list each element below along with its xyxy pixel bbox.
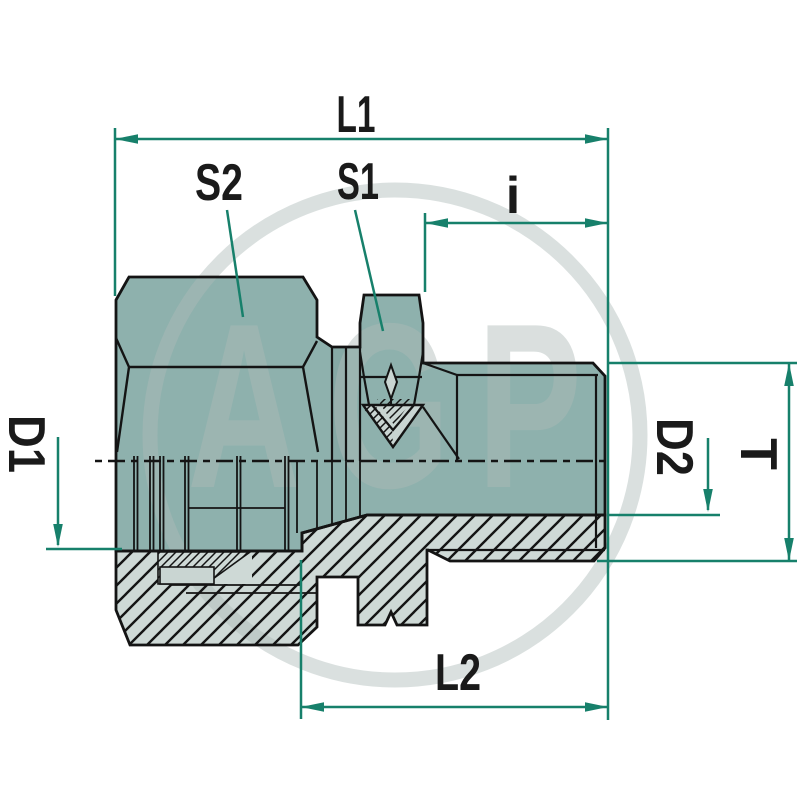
dim-label-d2: D2 bbox=[645, 418, 703, 476]
dim-label-t: T bbox=[729, 438, 787, 470]
dim-label-l2: L2 bbox=[435, 644, 481, 702]
dim-label-i: i bbox=[506, 167, 520, 225]
dim-label-s2: S2 bbox=[195, 154, 243, 212]
dim-label-s1: S1 bbox=[337, 153, 379, 211]
tube-end-section bbox=[160, 567, 214, 584]
dim-label-l1: L1 bbox=[337, 86, 376, 144]
fitting-diagram: AGP bbox=[0, 0, 800, 800]
technical-drawing-canvas: AGP bbox=[0, 0, 800, 800]
dim-label-d1: D1 bbox=[0, 415, 55, 473]
